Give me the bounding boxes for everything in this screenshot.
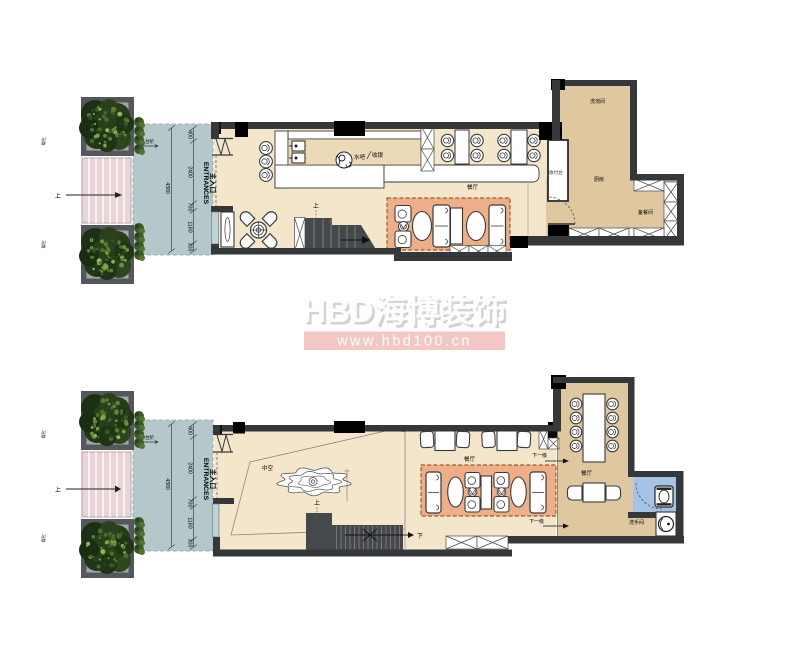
svg-text:2400: 2400 (187, 462, 193, 474)
svg-text:洗涴间: 洗涴间 (590, 98, 605, 105)
svg-text:1180: 1180 (187, 221, 193, 232)
svg-text:马路: 马路 (40, 430, 47, 439)
svg-text:上: 上 (314, 499, 320, 507)
svg-text:上: 上 (313, 202, 319, 210)
svg-text:收银: 收银 (372, 151, 384, 159)
svg-text:700: 700 (187, 203, 193, 212)
svg-text:www.hbd100.cn: www.hbd100.cn (336, 334, 472, 350)
svg-text:400: 400 (187, 130, 193, 139)
svg-text:ENTRANCES: ENTRANCES (202, 162, 209, 205)
svg-text:下: 下 (417, 533, 423, 540)
svg-text:300: 300 (187, 539, 193, 548)
svg-text:主入口: 主入口 (209, 469, 218, 490)
svg-text:ENTRANCES: ENTRANCES (202, 458, 209, 501)
svg-text:上: 上 (55, 192, 61, 200)
svg-text:4380: 4380 (164, 182, 170, 194)
svg-text:上: 上 (55, 486, 61, 494)
svg-text:下一级: 下一级 (529, 518, 544, 525)
svg-text:备餐间: 备餐间 (638, 209, 653, 216)
svg-text:水吧: 水吧 (354, 153, 366, 161)
svg-text:300: 300 (187, 243, 193, 252)
svg-text:餐厅: 餐厅 (464, 455, 476, 463)
svg-text:马路: 马路 (40, 137, 47, 146)
svg-text:HBD海博装饰: HBD海博装饰 (302, 292, 506, 329)
svg-text:厨房: 厨房 (594, 176, 604, 183)
svg-text:马路: 马路 (40, 534, 47, 543)
svg-text:中空: 中空 (262, 464, 274, 472)
svg-text:1180: 1180 (187, 517, 193, 528)
svg-text:台阶: 台阶 (145, 434, 154, 441)
svg-text:4380: 4380 (164, 478, 170, 490)
svg-text:餐厅: 餐厅 (581, 469, 593, 477)
svg-text:2400: 2400 (187, 166, 193, 178)
svg-text:台阶: 台阶 (145, 138, 154, 145)
svg-text:洗手间: 洗手间 (629, 519, 644, 526)
svg-text:下一级: 下一级 (532, 452, 547, 459)
svg-text:马路: 马路 (40, 240, 47, 249)
svg-text:400: 400 (187, 426, 193, 435)
svg-text:收付台: 收付台 (549, 169, 563, 176)
svg-text:700: 700 (187, 499, 193, 508)
svg-text:餐厅: 餐厅 (467, 183, 479, 191)
